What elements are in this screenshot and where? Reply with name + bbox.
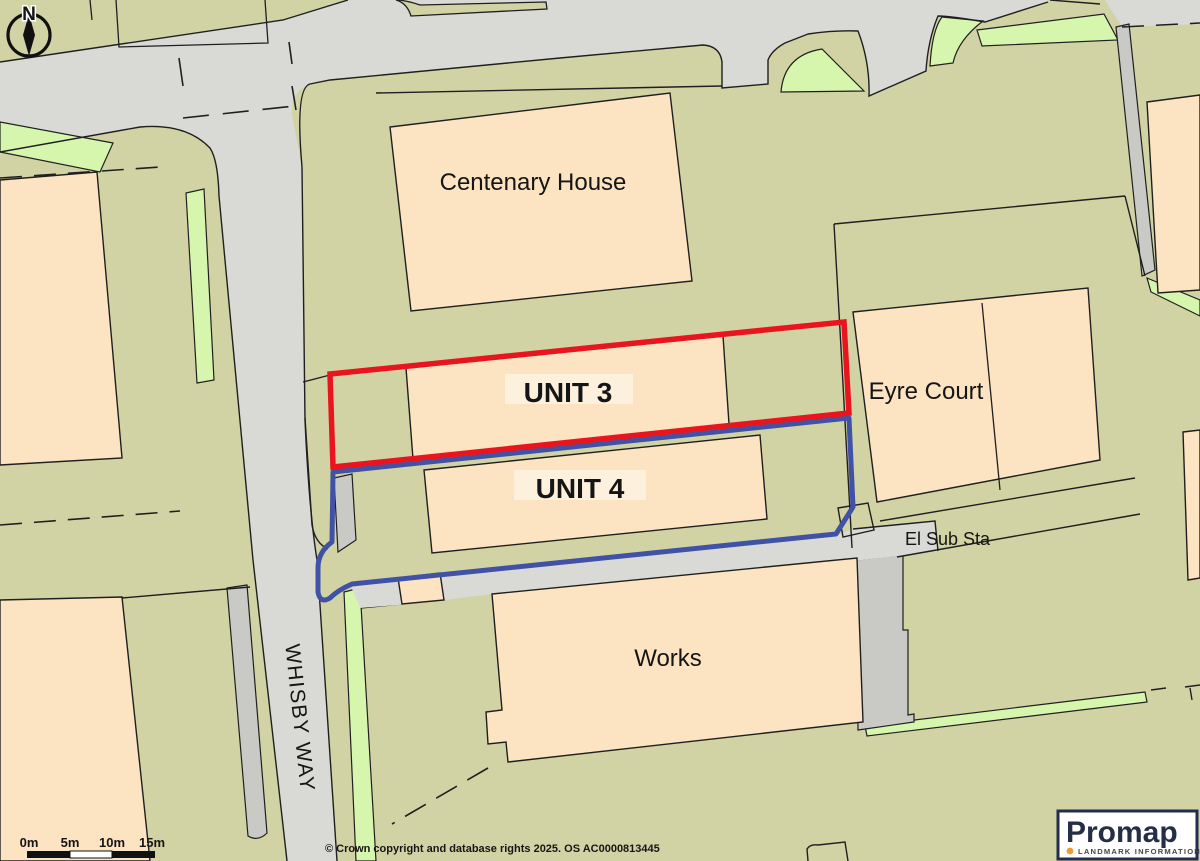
scale-label-15: 15m <box>139 835 165 850</box>
paved-pocket-site-entrance <box>334 474 356 552</box>
attribution-text: © Crown copyright and database rights 20… <box>325 843 660 855</box>
map-viewport: Centenary House UNIT 3 UNIT 4 Eyre Court… <box>0 0 1200 861</box>
label-unit-3: UNIT 3 <box>524 377 613 408</box>
scale-segment-3 <box>112 851 155 858</box>
map-canvas[interactable]: Centenary House UNIT 3 UNIT 4 Eyre Court… <box>0 0 1200 861</box>
label-unit-4: UNIT 4 <box>536 473 625 504</box>
building-centenary-house <box>390 93 692 311</box>
label-centenary-house: Centenary House <box>440 169 627 196</box>
promap-brand-text: Promap <box>1066 816 1178 849</box>
label-eyre-court: Eyre Court <box>869 378 984 405</box>
label-works: Works <box>634 645 702 672</box>
landmark-dot-icon <box>1067 848 1074 855</box>
scale-segment-1 <box>27 851 70 858</box>
label-el-sub-sta: El Sub Sta <box>905 529 991 549</box>
scale-label-0: 0m <box>20 835 39 850</box>
promap-logo: Promap LANDMARK INFORMATION <box>1058 811 1200 859</box>
compass-north-label: N <box>22 4 36 25</box>
structure-bottom-outline <box>807 842 848 861</box>
scale-segment-2 <box>70 851 112 858</box>
scale-label-10: 10m <box>99 835 125 850</box>
promap-tagline-text: LANDMARK INFORMATION <box>1078 847 1200 856</box>
scale-label-5: 5m <box>61 835 80 850</box>
